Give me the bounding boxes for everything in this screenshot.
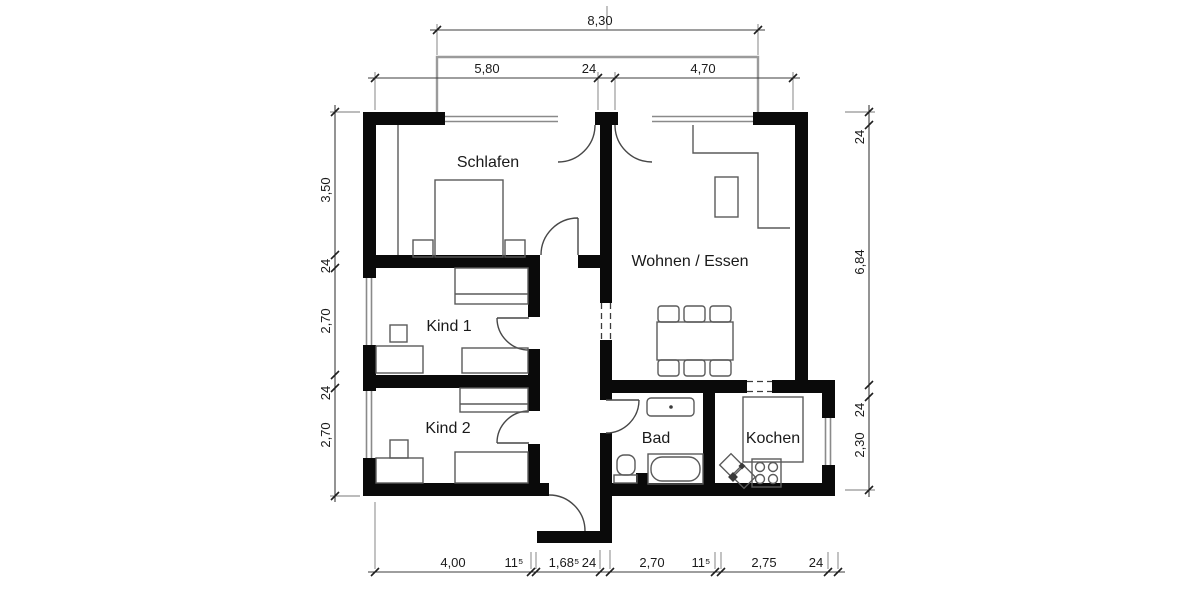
dim-left-4: 24: [318, 386, 333, 400]
window-kochen: [826, 418, 831, 465]
bathtub: [648, 454, 703, 484]
dim-bottom-8: 24: [809, 555, 823, 570]
sofa-kind1: [462, 348, 528, 373]
dim-right-1: 24: [852, 130, 867, 144]
dim-bottom-3: 1,68⁵: [549, 555, 580, 570]
desk-chair-kind1: [376, 325, 423, 373]
coffee-table: [715, 177, 738, 217]
dim-bottom-2: 11⁵: [505, 555, 524, 570]
door-schlafen: [541, 218, 578, 255]
desk-chair-kind2: [376, 440, 423, 483]
corner-unit: [693, 125, 790, 228]
floor-plan-drawing: Schlafen Wohnen / Essen Kind 1 Kind 2 Ba…: [0, 0, 1200, 600]
room-label-schlafen: Schlafen: [457, 154, 519, 171]
room-label-bad: Bad: [642, 430, 670, 447]
balcony-door-wohnen: [615, 125, 652, 162]
room-label-kind1: Kind 1: [426, 318, 471, 335]
dim-right-2: 6,84: [852, 249, 867, 274]
dim-right-4: 2,30: [852, 432, 867, 457]
door-kind1: [497, 318, 529, 350]
dim-left-5: 2,70: [318, 422, 333, 447]
window-kind2: [367, 391, 372, 458]
room-label-kind2: Kind 2: [425, 420, 470, 437]
balcony-door-schlafen: [558, 125, 595, 162]
window-wohnen: [652, 117, 753, 122]
floor-plan-page: Schlafen Wohnen / Essen Kind 1 Kind 2 Ba…: [0, 0, 1200, 600]
room-label-wohnen-essen: Wohnen / Essen: [631, 253, 748, 270]
sofa-kind2: [455, 452, 528, 483]
dim-top-2: 24: [582, 61, 596, 76]
door-bad: [606, 400, 639, 433]
opening-wohnen-kochen: [747, 382, 772, 392]
bed-kind1: [455, 268, 528, 304]
dim-top-3: 4,70: [690, 61, 715, 76]
window-schlafen: [445, 117, 558, 122]
washbasin: [647, 398, 694, 416]
dim-left-1: 3,50: [318, 177, 333, 202]
room-label-kochen: Kochen: [746, 430, 800, 447]
dim-left-2: 24: [318, 259, 333, 273]
dim-bottom-1: 4,00: [440, 555, 465, 570]
door-kind2: [497, 411, 529, 443]
bed-kind2: [460, 388, 528, 412]
window-kind1: [367, 278, 372, 345]
double-bed: [413, 180, 525, 257]
dimension-left-chain: 3,50 24 2,70 24 2,70: [318, 105, 360, 502]
dim-bottom-7: 2,75: [751, 555, 776, 570]
dim-top-1: 5,80: [474, 61, 499, 76]
dim-bottom-4: 24: [582, 555, 596, 570]
dimension-top-chain: 5,80 24 4,70: [368, 61, 800, 110]
toilet: [614, 455, 637, 483]
dim-bottom-5: 2,70: [639, 555, 664, 570]
entry-door: [549, 495, 585, 531]
dimension-right-chain: 24 6,84 24 2,30: [845, 105, 875, 497]
opening-hall-wohnen: [602, 303, 611, 340]
dim-top-total: 8,30: [587, 13, 612, 28]
dim-left-3: 2,70: [318, 308, 333, 333]
dim-right-3: 24: [852, 403, 867, 417]
dining-table: [657, 306, 733, 376]
stove: [752, 459, 781, 487]
dim-bottom-6: 11⁵: [692, 555, 711, 570]
dimension-top-total: 8,30: [430, 6, 765, 55]
